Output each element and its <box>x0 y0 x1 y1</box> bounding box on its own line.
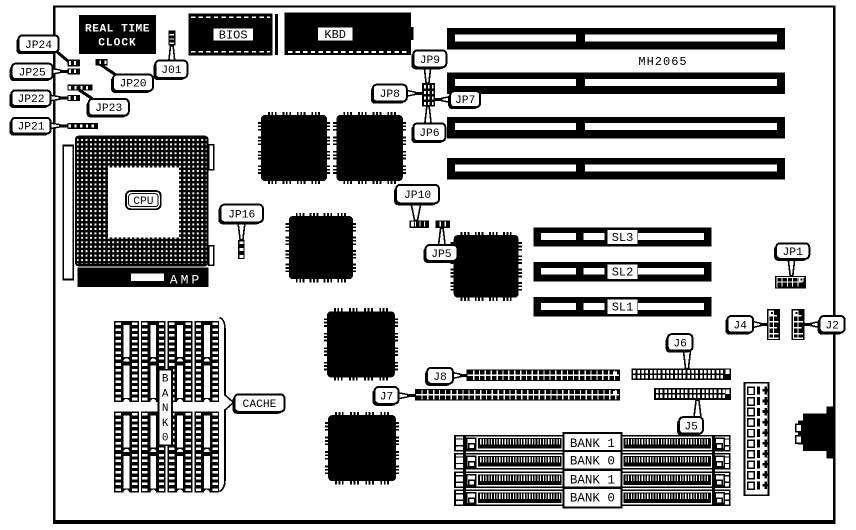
svg-text:SL1: SL1 <box>612 301 634 315</box>
svg-text:MH2065: MH2065 <box>638 55 687 69</box>
svg-text:JP23: JP23 <box>95 103 122 115</box>
svg-text:SL3: SL3 <box>612 231 634 245</box>
svg-text:JP24: JP24 <box>25 40 52 52</box>
svg-text:J7: J7 <box>380 391 394 403</box>
svg-text:JP5: JP5 <box>431 249 452 261</box>
svg-text:J6: J6 <box>673 338 687 350</box>
svg-text:JP22: JP22 <box>17 94 44 106</box>
svg-text:JP1: JP1 <box>783 247 804 259</box>
svg-text:CPU: CPU <box>133 196 153 208</box>
svg-text:N: N <box>162 403 169 415</box>
svg-text:CACHE: CACHE <box>243 399 277 411</box>
svg-text:SL2: SL2 <box>612 266 634 280</box>
svg-text:JP16: JP16 <box>228 209 255 221</box>
svg-text:REAL TIME: REAL TIME <box>85 24 150 36</box>
svg-text:J5: J5 <box>684 421 698 433</box>
svg-text:JP6: JP6 <box>419 128 440 140</box>
svg-text:BANK 1: BANK 1 <box>570 473 615 487</box>
svg-text:JP8: JP8 <box>380 89 401 101</box>
svg-text:J4: J4 <box>733 320 747 332</box>
svg-text:J01: J01 <box>161 65 182 77</box>
svg-text:BANK 1: BANK 1 <box>570 437 615 451</box>
svg-text:CLOCK: CLOCK <box>98 37 137 49</box>
svg-text:K: K <box>162 418 169 430</box>
svg-text:0: 0 <box>162 433 169 445</box>
svg-text:JP20: JP20 <box>119 79 146 91</box>
svg-text:BIOS: BIOS <box>219 29 248 43</box>
svg-text:A: A <box>162 388 169 400</box>
svg-text:JP10: JP10 <box>404 190 431 202</box>
svg-text:BANK 0: BANK 0 <box>570 491 615 505</box>
svg-text:J2: J2 <box>825 320 839 332</box>
svg-text:B: B <box>162 374 169 386</box>
svg-text:BANK 0: BANK 0 <box>570 455 615 469</box>
svg-text:JP9: JP9 <box>420 55 440 67</box>
svg-text:JP25: JP25 <box>19 67 46 79</box>
svg-text:J8: J8 <box>433 372 447 384</box>
svg-text:AMP: AMP <box>170 272 202 287</box>
svg-text:JP21: JP21 <box>17 122 44 134</box>
svg-text:JP7: JP7 <box>455 95 475 107</box>
svg-text:KBD: KBD <box>324 28 346 42</box>
